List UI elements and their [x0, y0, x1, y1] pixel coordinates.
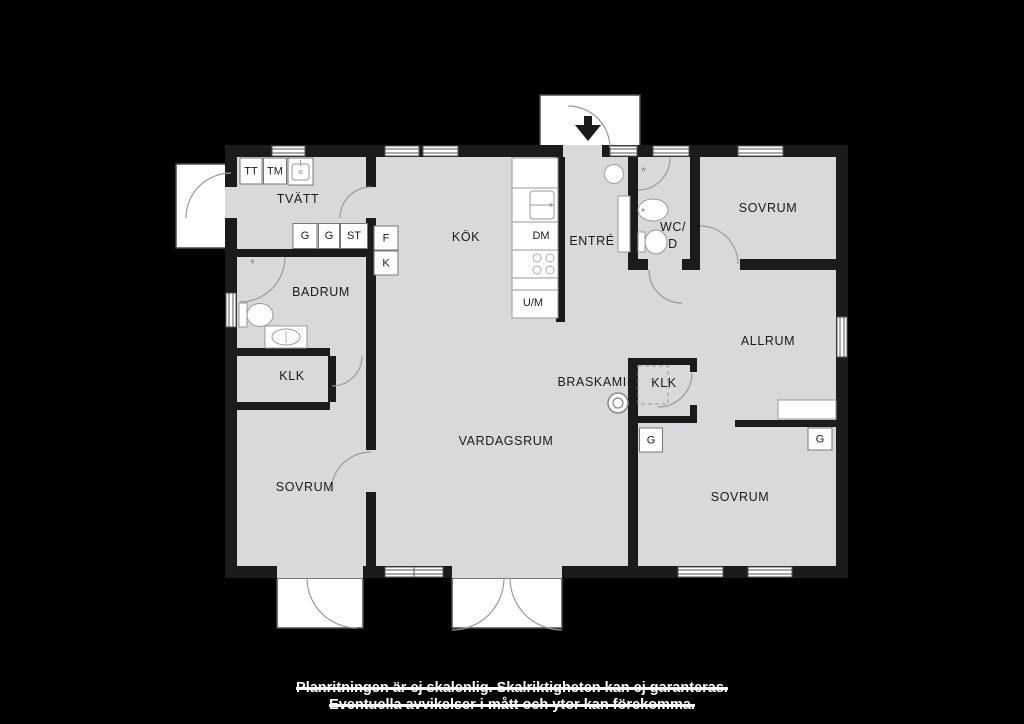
- toilet-icon: [239, 303, 273, 327]
- window: [653, 146, 689, 156]
- room-label-wc-line1: WC/: [660, 220, 686, 234]
- side-entrance-porch: [176, 164, 226, 248]
- floorplan-canvas: * *: [0, 0, 1024, 724]
- wall-klk-east-bottom: [628, 416, 697, 423]
- doorway-patio-center: [452, 566, 562, 578]
- wall-hall-segment-2: [682, 259, 700, 270]
- allrum-sideboard: [778, 400, 836, 419]
- room-label-braskamin: BRASKAMIN: [557, 375, 636, 389]
- bathroom-sink-icon: [265, 326, 307, 348]
- window: [385, 567, 443, 577]
- wall-klk-east-right-upper: [690, 358, 697, 372]
- window: [226, 293, 236, 327]
- doorway-tvatt: [366, 187, 376, 218]
- wall-vardagsrum-sovrum: [628, 358, 638, 566]
- room-label-kok: KÖK: [452, 230, 480, 244]
- patio-door-extension-center: [452, 578, 562, 628]
- wall-hall-segment-3: [740, 259, 836, 270]
- room-label-sovrum-sw: SOVRUM: [276, 480, 334, 494]
- room-label-wc-line2: D: [668, 237, 678, 251]
- wall-allrum-sovrum: [735, 420, 836, 427]
- doorway-main-entrance: [563, 145, 602, 157]
- fixture-label-st: ST: [340, 223, 368, 249]
- braskamin-icon: [608, 393, 628, 413]
- room-label-sovrum-ne: SOVRUM: [739, 201, 797, 215]
- fixture-label-dm: DM: [532, 230, 549, 242]
- tvatt-sink-icon: [288, 158, 313, 185]
- fixture-label-um: U/M: [523, 297, 543, 309]
- fixture-label-g4: G: [808, 428, 833, 451]
- disclaimer-line-1: Planritningen är ej skalenlig. Skalrikti…: [296, 680, 728, 697]
- room-label-allrum: ALLRUM: [741, 334, 795, 348]
- room-label-vardagsrum: VARDAGSRUM: [459, 434, 554, 448]
- fixture-label-tm: TM: [263, 158, 287, 185]
- window: [385, 146, 419, 156]
- disclaimer-line-2: Eventuella avvikelser i mått och ytor ka…: [296, 697, 728, 714]
- kitchen-sink-icon: [530, 191, 554, 219]
- window: [678, 567, 723, 577]
- wall-left-wing: [366, 157, 376, 566]
- window: [423, 146, 458, 156]
- fixture-label-k: K: [374, 251, 399, 276]
- fixture-label-g3: G: [639, 428, 663, 453]
- wall-hall-segment-1: [628, 259, 648, 270]
- fixture-label-g2: G: [318, 223, 340, 249]
- shower-star-icon: *: [250, 256, 255, 271]
- doorway-sovrum-sw: [366, 450, 376, 492]
- fixture-label-g1: G: [293, 223, 318, 249]
- wall-outer-right: [836, 145, 848, 578]
- room-label-klk-west: KLK: [279, 369, 304, 383]
- wall-tvatt-badrum: [237, 249, 366, 257]
- room-label-tvatt: TVÄTT: [277, 192, 320, 206]
- wall-klk-east-top: [628, 358, 697, 365]
- room-label-klk-east: KLK: [651, 376, 676, 390]
- room-label-badrum: BADRUM: [292, 285, 350, 299]
- doorway-patio-left: [277, 566, 363, 578]
- window: [272, 146, 305, 156]
- shower-star-icon: *: [641, 164, 646, 179]
- wc-sink-icon: [638, 199, 668, 221]
- patio-door-extension-left: [277, 578, 363, 628]
- wall-klk-west-right: [328, 356, 336, 402]
- doorway-side-entrance: [225, 187, 237, 218]
- floorplan-graphic: * *: [0, 0, 1024, 724]
- room-label-entre: ENTRÉ: [569, 234, 614, 248]
- wall-badrum-klk: [237, 348, 330, 356]
- window: [837, 317, 847, 357]
- room-label-sovrum-se: SOVRUM: [711, 490, 769, 504]
- disclaimer-caption: Planritningen är ej skalenlig. Skalrikti…: [296, 680, 728, 714]
- entre-column-icon: [605, 165, 624, 184]
- entre-cabinet: [618, 196, 630, 252]
- window: [748, 567, 792, 577]
- wall-wc-bedroom: [690, 157, 700, 259]
- window: [610, 146, 637, 156]
- window: [738, 146, 783, 156]
- fixture-label-tt: TT: [240, 158, 263, 185]
- fixture-label-f: F: [374, 226, 399, 251]
- wall-klk-sovrum: [237, 402, 330, 410]
